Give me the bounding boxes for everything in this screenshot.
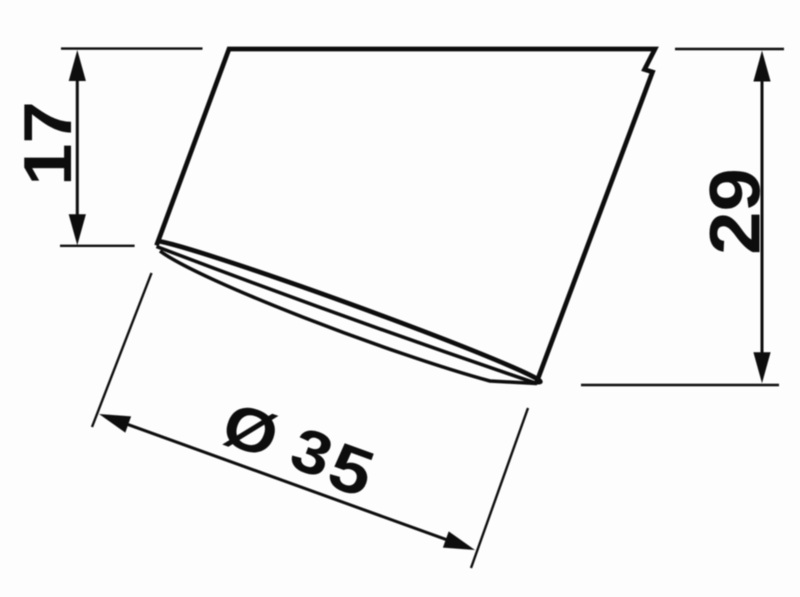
- svg-text:29: 29: [695, 168, 775, 255]
- svg-text:17: 17: [11, 101, 86, 186]
